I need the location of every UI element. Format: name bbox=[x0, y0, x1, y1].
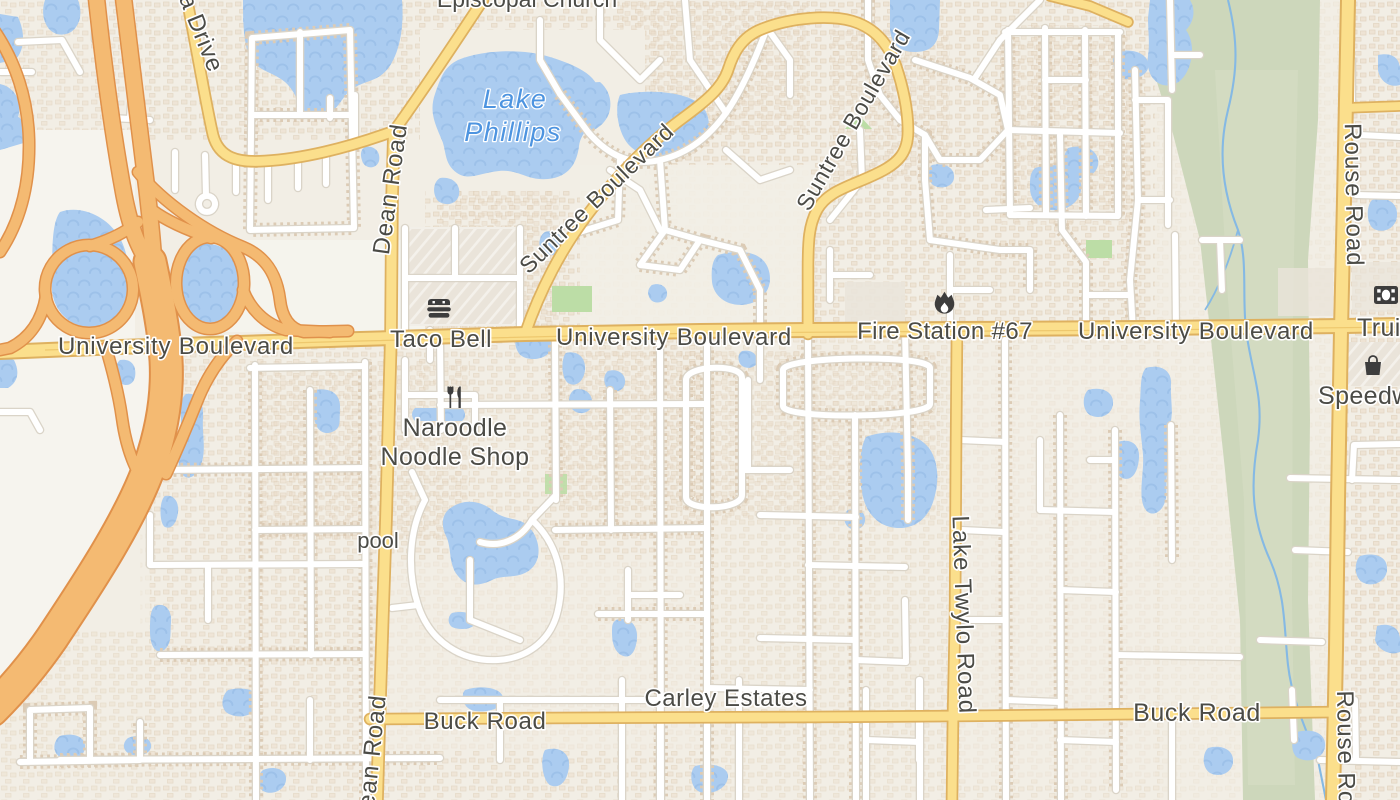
svg-text:Naroodle: Naroodle bbox=[403, 414, 508, 442]
svg-text:University Boulevard: University Boulevard bbox=[556, 324, 792, 351]
svg-text:Trui: Trui bbox=[1357, 314, 1400, 342]
svg-text:pool: pool bbox=[357, 528, 399, 553]
svg-text:Buck Road: Buck Road bbox=[424, 708, 547, 735]
svg-text:Rouse Road: Rouse Road bbox=[1339, 123, 1368, 267]
svg-text:University Boulevard: University Boulevard bbox=[58, 333, 294, 360]
svg-text:Lake: Lake bbox=[483, 84, 548, 114]
svg-text:Noodle Shop: Noodle Shop bbox=[381, 443, 530, 471]
svg-text:Phillips: Phillips bbox=[464, 117, 562, 147]
svg-text:Buck Road: Buck Road bbox=[1133, 699, 1261, 727]
svg-text:Taco Bell: Taco Bell bbox=[390, 326, 492, 353]
svg-text:Rouse Ro: Rouse Ro bbox=[1331, 690, 1360, 800]
svg-text:University Boulevard: University Boulevard bbox=[1078, 318, 1314, 345]
svg-text:Fire Station #67: Fire Station #67 bbox=[857, 318, 1033, 345]
svg-text:Speedw: Speedw bbox=[1318, 382, 1400, 410]
svg-text:Episcopal Church: Episcopal Church bbox=[437, 0, 617, 12]
svg-text:Carley Estates: Carley Estates bbox=[644, 685, 807, 712]
